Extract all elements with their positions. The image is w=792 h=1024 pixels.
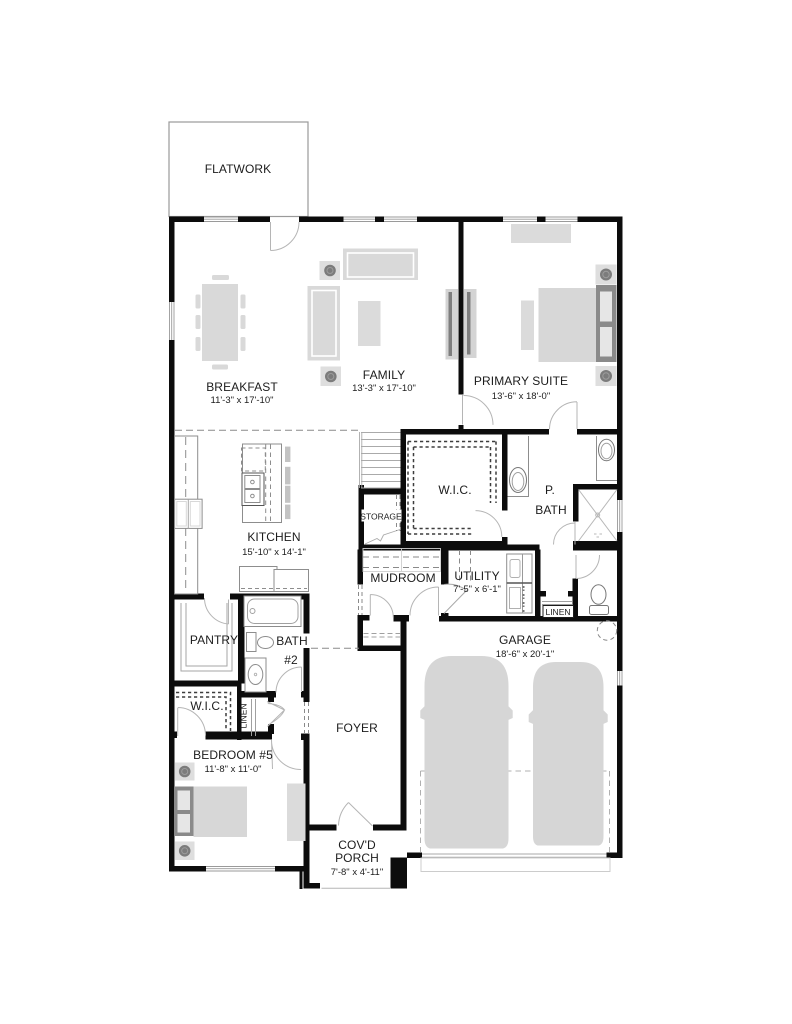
svg-text:W.I.C.: W.I.C. bbox=[190, 699, 223, 713]
svg-text:LINEN: LINEN bbox=[239, 703, 249, 728]
svg-text:PORCH: PORCH bbox=[335, 851, 379, 865]
svg-text:KITCHEN: KITCHEN bbox=[247, 530, 300, 544]
svg-text:15'-10" x 14'-1": 15'-10" x 14'-1" bbox=[242, 547, 306, 558]
svg-text:PRIMARY SUITE: PRIMARY SUITE bbox=[474, 374, 568, 388]
svg-text:BATH: BATH bbox=[276, 634, 308, 648]
svg-text:11'-3" x 17'-10": 11'-3" x 17'-10" bbox=[210, 395, 273, 406]
svg-text:STORAGE: STORAGE bbox=[360, 512, 402, 522]
svg-text:BEDROOM #5: BEDROOM #5 bbox=[193, 748, 273, 762]
svg-text:FAMILY: FAMILY bbox=[363, 368, 405, 382]
svg-text:GARAGE: GARAGE bbox=[499, 633, 551, 647]
svg-text:W.I.C.: W.I.C. bbox=[438, 483, 471, 497]
svg-text:7'-8" x 4'-11": 7'-8" x 4'-11" bbox=[331, 867, 383, 878]
svg-text:BATH: BATH bbox=[535, 503, 567, 517]
svg-text:P.: P. bbox=[545, 483, 555, 497]
svg-text:MUDROOM: MUDROOM bbox=[370, 571, 435, 585]
svg-text:BREAKFAST: BREAKFAST bbox=[206, 380, 278, 394]
svg-text:7'-5" x 6'-1": 7'-5" x 6'-1" bbox=[453, 584, 501, 595]
svg-text:LINEN: LINEN bbox=[545, 607, 570, 617]
svg-text:18'-6" x 20'-1": 18'-6" x 20'-1" bbox=[496, 649, 554, 660]
svg-text:13'-6" x 18'-0": 13'-6" x 18'-0" bbox=[492, 391, 550, 402]
svg-text:FLATWORK: FLATWORK bbox=[205, 162, 272, 176]
svg-text:UTILITY: UTILITY bbox=[454, 569, 499, 583]
svg-text:11'-8" x 11'-0": 11'-8" x 11'-0" bbox=[204, 764, 261, 775]
svg-text:#2: #2 bbox=[284, 653, 298, 667]
svg-text:PANTRY: PANTRY bbox=[190, 633, 238, 647]
svg-text:13'-3" x 17'-10": 13'-3" x 17'-10" bbox=[352, 383, 416, 394]
svg-text:FOYER: FOYER bbox=[336, 721, 378, 735]
svg-text:COV'D: COV'D bbox=[338, 838, 376, 852]
